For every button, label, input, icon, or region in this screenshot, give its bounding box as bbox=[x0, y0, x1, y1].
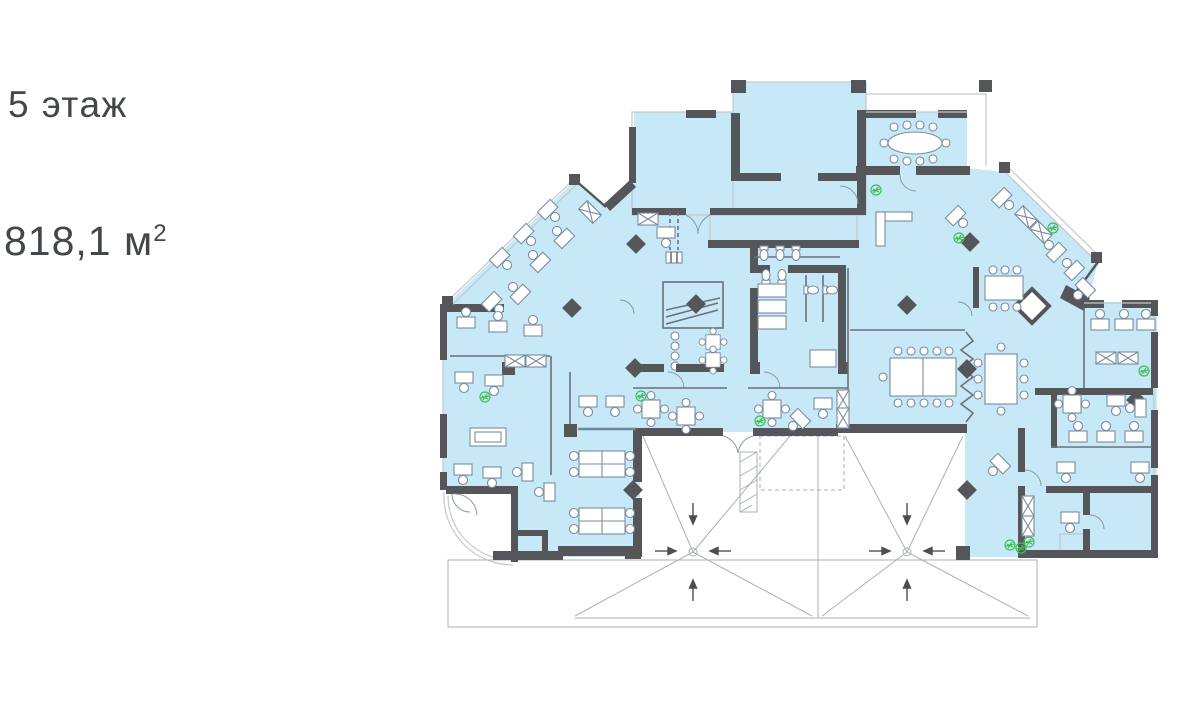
floor-plan-page: 5 этаж 818,1 м2 bbox=[0, 0, 1196, 722]
small-meeting-table bbox=[985, 266, 1023, 311]
floor-plan bbox=[0, 0, 1196, 722]
